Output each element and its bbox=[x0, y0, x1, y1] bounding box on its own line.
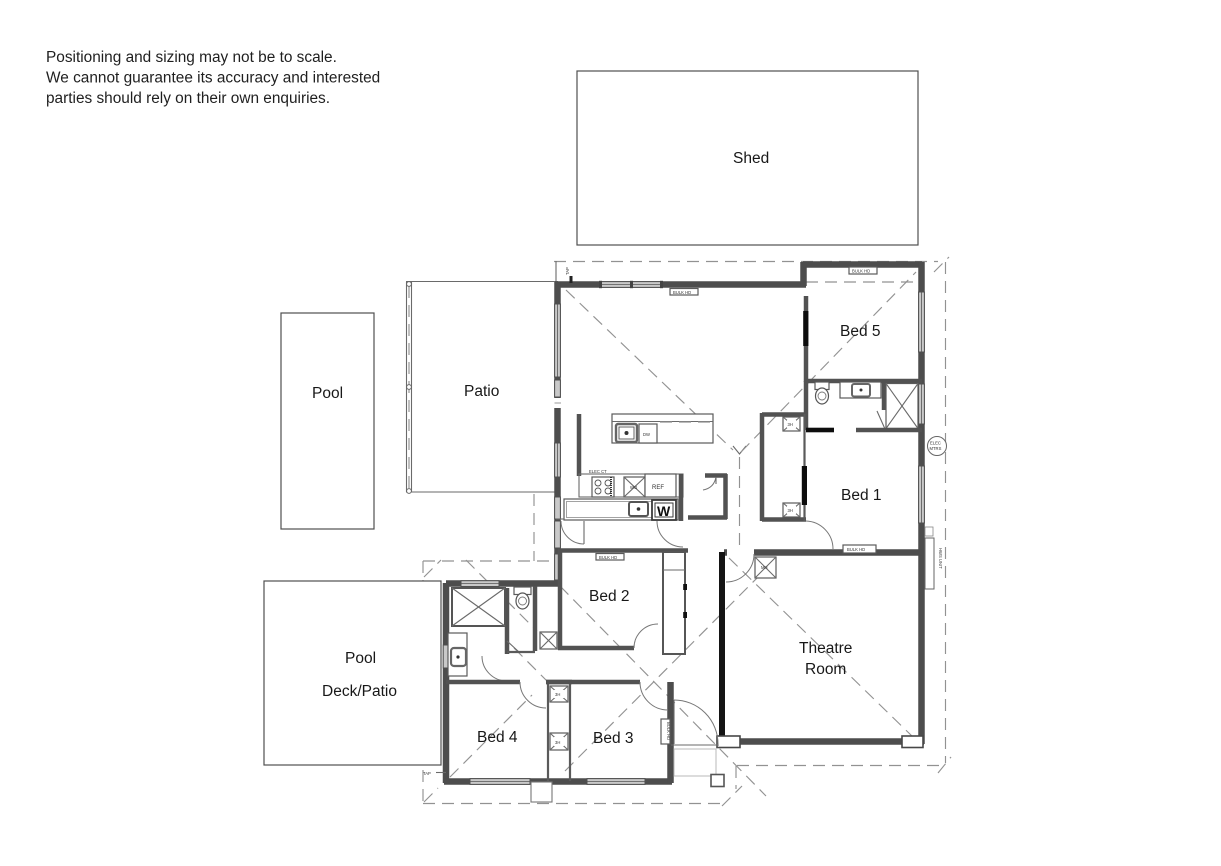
svg-text:Shed: Shed bbox=[733, 150, 769, 167]
svg-text:REF: REF bbox=[652, 485, 664, 491]
svg-text:Pool: Pool bbox=[345, 650, 376, 667]
svg-text:3H: 3H bbox=[788, 422, 793, 427]
svg-text:We cannot guarantee its accura: We cannot guarantee its accuracy and int… bbox=[46, 70, 380, 87]
svg-text:BULK HD: BULK HD bbox=[666, 722, 671, 740]
svg-text:3H: 3H bbox=[555, 740, 560, 745]
svg-text:MH: MH bbox=[761, 565, 768, 570]
svg-text:BULK HD: BULK HD bbox=[599, 555, 617, 560]
svg-text:Bed 2: Bed 2 bbox=[589, 588, 630, 605]
svg-text:Deck/Patio: Deck/Patio bbox=[322, 683, 397, 700]
svg-text:ELEC: ELEC bbox=[930, 441, 941, 446]
svg-text:3H: 3H bbox=[555, 692, 560, 697]
svg-text:ELEC CT: ELEC CT bbox=[589, 469, 607, 474]
svg-text:BULK HD: BULK HD bbox=[852, 269, 870, 274]
svg-text:Pool: Pool bbox=[312, 385, 343, 402]
svg-text:parties should rely on their o: parties should rely on their own enquiri… bbox=[46, 90, 330, 107]
svg-text:Bed 3: Bed 3 bbox=[593, 730, 634, 747]
svg-text:Room: Room bbox=[805, 661, 846, 678]
svg-text:BULK HD: BULK HD bbox=[673, 290, 691, 295]
svg-text:3H: 3H bbox=[788, 508, 793, 513]
svg-text:WO: WO bbox=[630, 485, 638, 490]
svg-text:Bed 1: Bed 1 bbox=[841, 487, 882, 504]
svg-text:HWS UNIT: HWS UNIT bbox=[938, 548, 943, 569]
svg-text:BULK HD: BULK HD bbox=[847, 547, 865, 552]
svg-text:W: W bbox=[657, 503, 671, 519]
svg-text:MTRS: MTRS bbox=[930, 446, 942, 451]
svg-text:DW: DW bbox=[643, 432, 650, 437]
svg-text:Theatre: Theatre bbox=[799, 640, 852, 657]
svg-text:TAP: TAP bbox=[565, 267, 570, 275]
svg-text:Patio: Patio bbox=[464, 383, 499, 400]
svg-text:Bed 4: Bed 4 bbox=[477, 729, 518, 746]
svg-text:Positioning and sizing may not: Positioning and sizing may not be to sca… bbox=[46, 49, 337, 66]
svg-text:TAP: TAP bbox=[423, 771, 431, 776]
svg-text:Bed 5: Bed 5 bbox=[840, 323, 881, 340]
